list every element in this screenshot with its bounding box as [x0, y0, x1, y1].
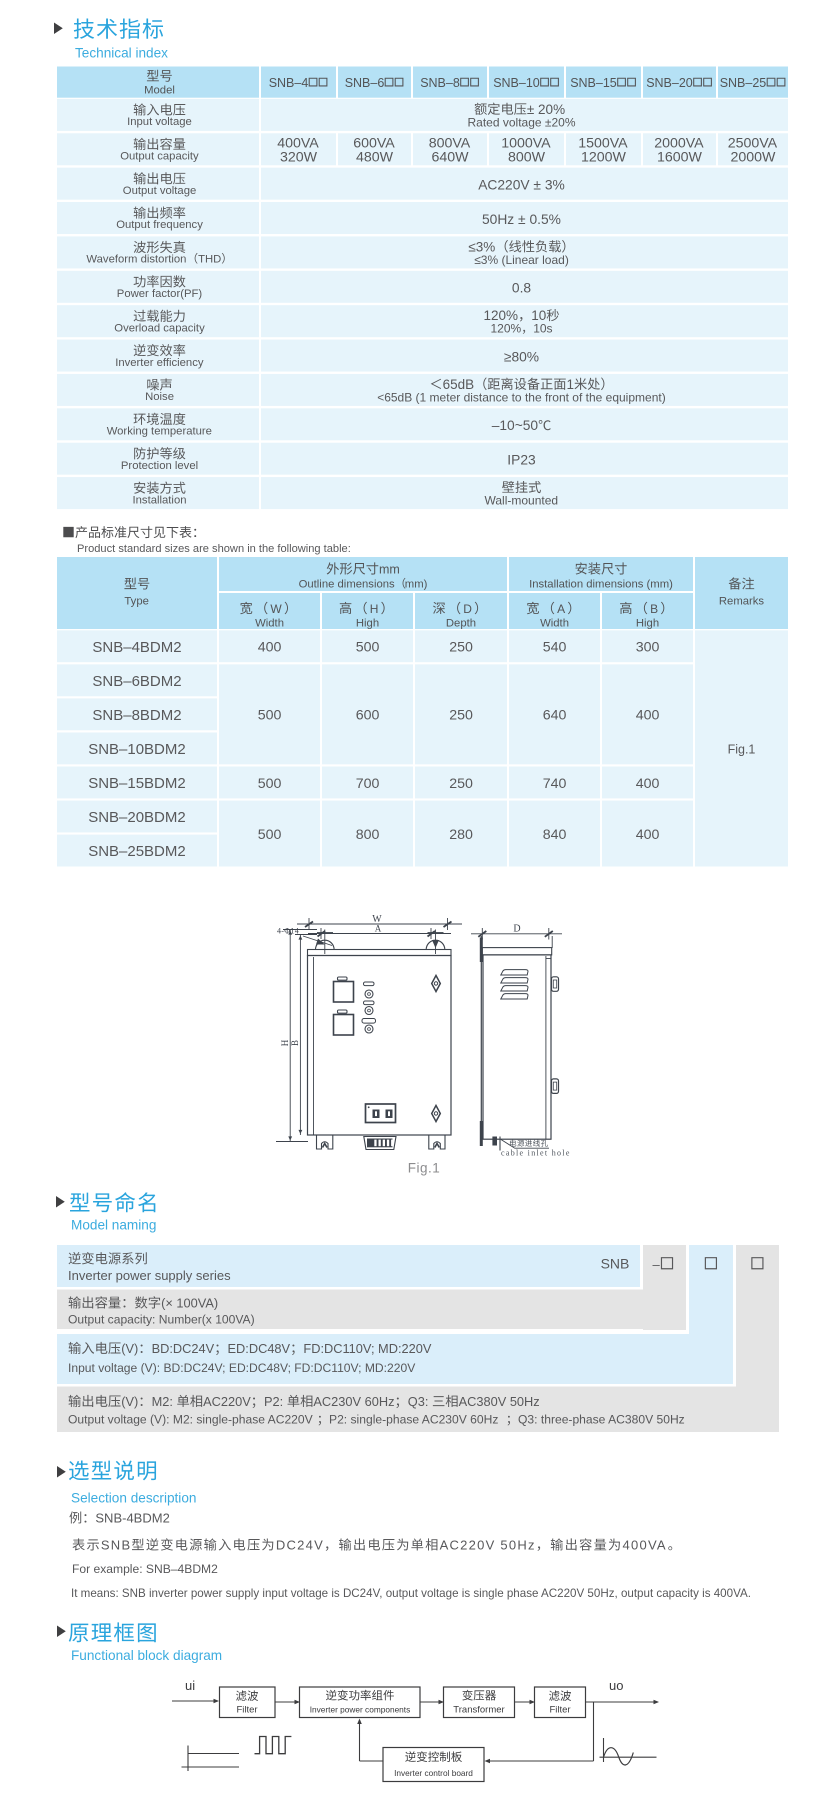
svg-text:mm: mm	[379, 563, 400, 577]
svg-text:Output frequency: Output frequency	[116, 219, 203, 231]
svg-text:SNB–15BDM2: SNB–15BDM2	[88, 775, 186, 792]
svg-text:280: 280	[449, 827, 473, 843]
svg-text:SNB–25: SNB–25	[720, 76, 767, 90]
svg-text:0.8: 0.8	[512, 281, 532, 296]
svg-text:500: 500	[356, 640, 380, 656]
svg-text:Width: Width	[540, 618, 569, 630]
svg-text:400VA: 400VA	[623, 1538, 667, 1553]
svg-text:Working temperature: Working temperature	[107, 426, 212, 438]
svg-text:740: 740	[543, 776, 567, 792]
svg-text:THD: THD	[198, 254, 221, 266]
svg-text:Protection level: Protection level	[121, 460, 198, 472]
svg-text:(V): (V)	[121, 1394, 138, 1409]
svg-text:P2: single-phase AC230V 60Hz: P2: single-phase AC230V 60Hz	[329, 1413, 498, 1427]
svg-text:B: B	[650, 602, 660, 616]
svg-text:For example: SNB–4BDM2: For example: SNB–4BDM2	[72, 1562, 218, 1576]
svg-text:840: 840	[543, 827, 567, 843]
svg-text:AC220V 50Hz: AC220V 50Hz	[440, 1538, 536, 1553]
svg-text:SNB: SNB	[601, 1256, 630, 1272]
svg-text:250: 250	[449, 708, 473, 724]
svg-text:Output capacity: Output capacity	[120, 151, 199, 163]
svg-text:M2:: M2:	[152, 1394, 173, 1409]
svg-text:Overload capacity: Overload capacity	[114, 322, 205, 334]
svg-text:Product standard sizes are sho: Product standard sizes are shown in the …	[77, 543, 351, 555]
svg-text:Inverter control board: Inverter control board	[394, 1768, 473, 1778]
svg-text:Input voltage: Input voltage	[127, 116, 192, 128]
svg-text:400: 400	[636, 827, 660, 843]
svg-text:Model: Model	[144, 85, 175, 97]
svg-text:500: 500	[258, 827, 282, 843]
svg-text:400: 400	[636, 776, 660, 792]
svg-text:High: High	[356, 618, 379, 630]
svg-text:Inverter power supply series: Inverter power supply series	[68, 1268, 231, 1283]
svg-text:SNB–20: SNB–20	[646, 76, 693, 90]
svg-text:SNB–6BDM2: SNB–6BDM2	[92, 673, 181, 690]
svg-text:Output voltage: Output voltage	[123, 185, 196, 197]
svg-text:640: 640	[543, 708, 567, 724]
svg-text:Input voltage (V): BD:DC24V;: Input voltage (V): BD:DC24V; ED:DC48V; F…	[68, 1361, 416, 1375]
svg-text:400: 400	[636, 708, 660, 724]
svg-text:Fig.1: Fig.1	[728, 742, 756, 756]
svg-text:250: 250	[449, 776, 473, 792]
svg-text:Transformer: Transformer	[453, 1705, 504, 1716]
svg-text:10s: 10s	[533, 322, 552, 336]
svg-text:FD:DC110V; MD:220V: FD:DC110V; MD:220V	[303, 1341, 431, 1356]
svg-text:Power factor(PF): Power factor(PF)	[117, 288, 203, 300]
svg-text:Inverter efficiency: Inverter efficiency	[115, 357, 204, 369]
svg-text:(V): (V)	[121, 1341, 138, 1356]
svg-text:640W: 640W	[432, 149, 470, 165]
svg-text:–10~50: –10~50	[492, 418, 539, 433]
svg-text:SNB-4BDM2: SNB-4BDM2	[95, 1511, 169, 1526]
svg-text:W: W	[270, 602, 284, 616]
svg-text:Installation: Installation	[133, 494, 187, 506]
svg-text:Model naming: Model naming	[71, 1218, 156, 1233]
svg-text:SNB–15: SNB–15	[570, 76, 617, 90]
svg-text:Selection description: Selection description	[71, 1491, 196, 1506]
svg-text:D: D	[513, 924, 520, 935]
svg-text:800: 800	[356, 827, 380, 843]
svg-text:320W: 320W	[280, 149, 318, 165]
svg-text:Waveform distortion: Waveform distortion	[86, 254, 186, 266]
svg-text:Noise: Noise	[145, 391, 174, 403]
svg-text:AC220V: AC220V	[203, 1394, 251, 1409]
svg-text:uo: uo	[609, 1678, 623, 1693]
svg-text:250: 250	[449, 640, 473, 656]
svg-text:SNB–8: SNB–8	[420, 76, 460, 90]
svg-text:480W: 480W	[356, 149, 394, 165]
svg-text:1600W: 1600W	[657, 149, 703, 165]
svg-text:ED:DC48V: ED:DC48V	[228, 1341, 291, 1356]
svg-text:Remarks: Remarks	[719, 596, 765, 608]
svg-text:Rated voltage ±20%: Rated voltage ±20%	[468, 115, 576, 129]
svg-text:≥80%: ≥80%	[504, 349, 539, 364]
svg-text:Width: Width	[255, 618, 284, 630]
svg-text:700: 700	[356, 776, 380, 792]
svg-text:Fig.1: Fig.1	[408, 1161, 441, 1176]
svg-text:Technical index: Technical index	[75, 46, 168, 61]
svg-text:Installation dimensions (mm): Installation dimensions (mm)	[529, 579, 673, 591]
svg-text:Q3: three-phase AC380V 50Hz: Q3: three-phase AC380V 50Hz	[518, 1413, 685, 1427]
svg-text:Filter: Filter	[549, 1705, 570, 1716]
svg-text:Filter: Filter	[236, 1705, 257, 1716]
svg-text:High: High	[636, 618, 659, 630]
svg-text:300: 300	[636, 640, 660, 656]
svg-text:H: H	[370, 602, 381, 616]
svg-text:SNB–4: SNB–4	[269, 76, 309, 90]
svg-text:400: 400	[258, 640, 282, 656]
svg-text:SNB–10: SNB–10	[493, 76, 540, 90]
svg-text:600: 600	[356, 708, 380, 724]
svg-text:cable inlet hole: cable inlet hole	[501, 1149, 571, 1158]
svg-text:120%: 120%	[491, 322, 522, 336]
svg-text:SNB: SNB	[101, 1538, 131, 1553]
svg-text:SNB–20BDM2: SNB–20BDM2	[88, 809, 186, 826]
svg-text:Q3:: Q3:	[408, 1394, 429, 1409]
svg-text:H: H	[280, 1039, 290, 1046]
svg-text:SNB–6: SNB–6	[345, 76, 385, 90]
svg-text:2000W: 2000W	[731, 149, 777, 165]
svg-text:Output voltage (V): M2: singl: Output voltage (V): M2: single-phase AC2…	[68, 1413, 314, 1427]
svg-text:DC24V: DC24V	[276, 1538, 324, 1553]
svg-text:540: 540	[543, 640, 567, 656]
svg-text:IP23: IP23	[507, 453, 536, 468]
svg-text:SNB–4BDM2: SNB–4BDM2	[92, 639, 181, 656]
svg-text:A: A	[557, 602, 567, 616]
svg-text:BD:DC24V: BD:DC24V	[152, 1341, 215, 1356]
svg-text:Type: Type	[124, 596, 148, 608]
svg-text:AC380V 50Hz: AC380V 50Hz	[459, 1394, 540, 1409]
svg-text:SNB–10BDM2: SNB–10BDM2	[88, 741, 186, 758]
svg-text:500: 500	[258, 776, 282, 792]
svg-text:Functional block diagram: Functional block diagram	[71, 1648, 222, 1663]
svg-text:SNB–8BDM2: SNB–8BDM2	[92, 707, 181, 724]
svg-text:SNB–25BDM2: SNB–25BDM2	[88, 843, 186, 860]
svg-text:Inverter power components: Inverter power components	[310, 1705, 411, 1715]
svg-text:≤3% (Linear load): ≤3% (Linear load)	[474, 253, 569, 267]
svg-text:50Hz ± 0.5%: 50Hz ± 0.5%	[482, 212, 561, 227]
svg-text:B: B	[290, 1040, 300, 1046]
svg-text:AC230V 60Hz: AC230V 60Hz	[313, 1394, 394, 1409]
svg-text:D: D	[463, 602, 474, 616]
svg-text:ui: ui	[185, 1678, 195, 1693]
svg-text:Wall-mounted: Wall-mounted	[485, 494, 559, 508]
svg-text:800W: 800W	[508, 149, 546, 165]
svg-text:It means: SNB inverter power s: It means: SNB inverter power supply inpu…	[71, 1587, 751, 1600]
svg-text:mm): mm)	[405, 579, 428, 591]
svg-text:Depth: Depth	[446, 618, 476, 630]
svg-text:–: –	[653, 1257, 661, 1272]
svg-text:A: A	[375, 924, 382, 934]
svg-text:<65dB (1 meter distance to the: <65dB (1 meter distance to the front of …	[377, 390, 666, 404]
svg-text:1200W: 1200W	[581, 149, 627, 165]
svg-text:AC220V ± 3%: AC220V ± 3%	[478, 178, 565, 193]
svg-text:500: 500	[258, 708, 282, 724]
svg-text:P2:: P2:	[264, 1394, 283, 1409]
svg-text:Outline dimensions: Outline dimensions	[299, 579, 395, 591]
svg-text:(× 100VA): (× 100VA)	[161, 1296, 218, 1311]
svg-text:Output capacity: Number(x 100V: Output capacity: Number(x 100VA)	[68, 1313, 255, 1327]
